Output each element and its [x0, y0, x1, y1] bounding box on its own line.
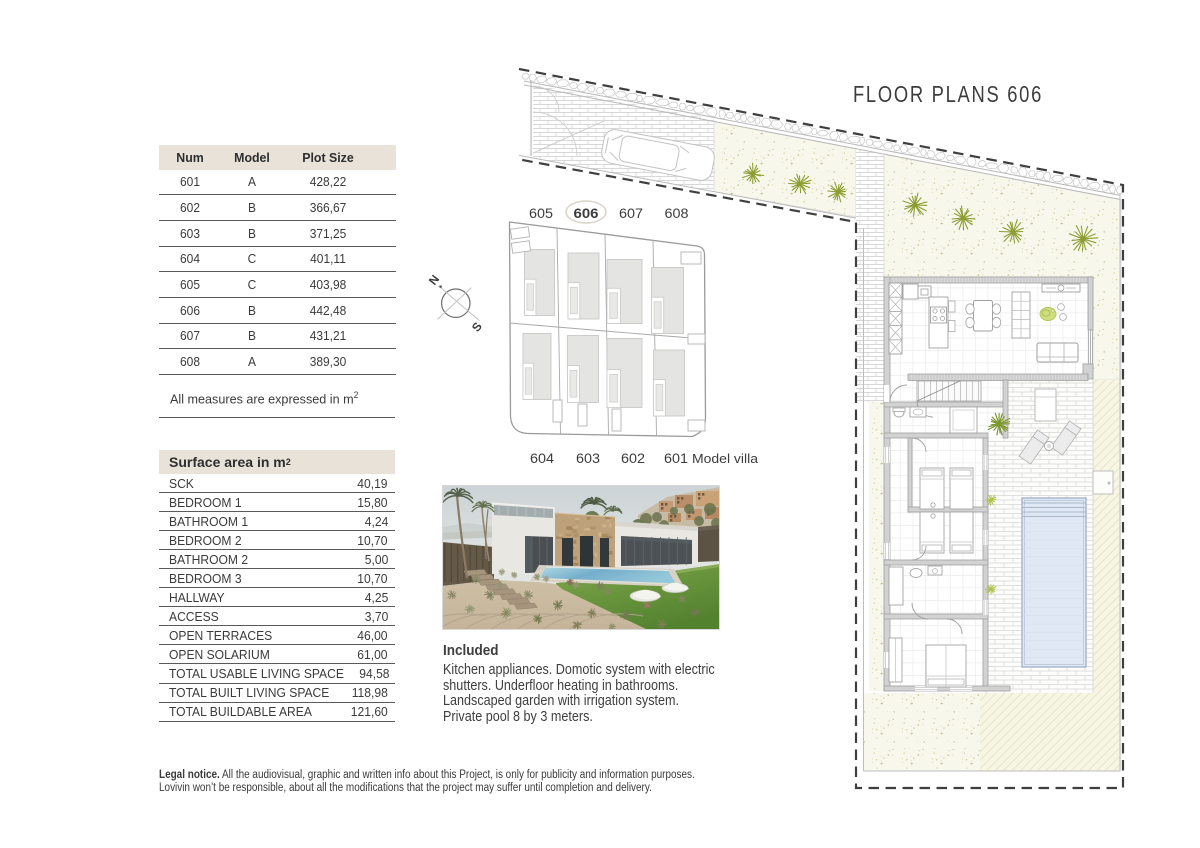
- svg-text:602: 602: [621, 451, 645, 466]
- svg-text:607: 607: [619, 206, 643, 221]
- svg-text:604: 604: [530, 451, 555, 466]
- svg-text:605: 605: [529, 206, 553, 221]
- svg-text:601: 601: [664, 451, 688, 466]
- svg-text:603: 603: [576, 451, 600, 466]
- svg-text:S: S: [469, 320, 485, 335]
- svg-text:606: 606: [574, 206, 600, 221]
- svg-text:608: 608: [665, 206, 689, 221]
- svg-text:N: N: [426, 272, 442, 287]
- svg-text:Model villa: Model villa: [692, 451, 759, 466]
